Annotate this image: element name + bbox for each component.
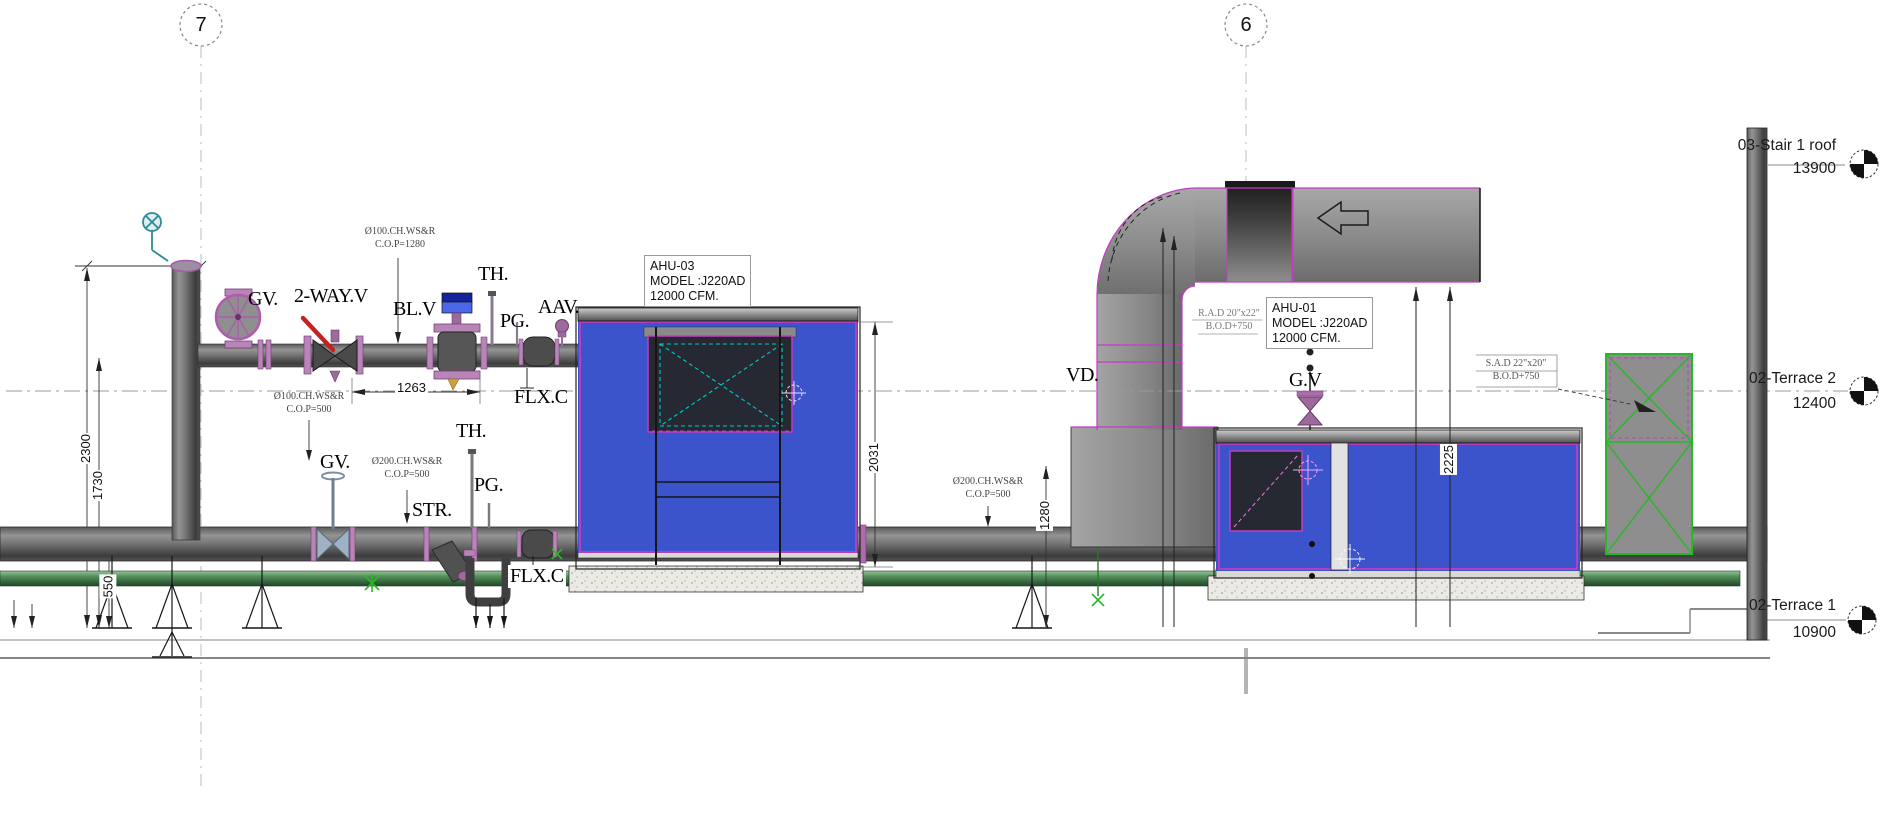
- louver-boxes: [1606, 354, 1692, 554]
- ahu03-tag-box: AHU-03 MODEL :J220AD 12000 CFM.: [644, 255, 751, 307]
- pipe-tag-chw-main: Ø200.CH.WS&R C.O.P=500: [933, 475, 1043, 501]
- ahu01-tag-box: AHU-01 MODEL :J220AD 12000 CFM.: [1266, 297, 1373, 349]
- ahu03-flow: 12000 CFM.: [650, 289, 745, 304]
- label-flex-conn-top: FLX.C: [514, 386, 568, 409]
- label-gate-valve-top: GV.: [248, 288, 278, 311]
- label-pressure-gauge-low: PG.: [474, 474, 503, 497]
- level-terrace1-elev: 10900: [1700, 624, 1836, 642]
- ahu01-unit: [1208, 428, 1584, 600]
- label-volume-damper: VD.: [1066, 364, 1098, 387]
- dim-1263: 1263: [395, 380, 428, 395]
- cad-drawing-view: 7 6 03-Stair 1 roof 13900 02-Terrace 2 1…: [0, 0, 1894, 829]
- duct-tag-rad: R.A.D 20"x22" B.O.D+750: [1179, 307, 1279, 333]
- dim-550: 550: [99, 575, 116, 599]
- balancing-valve: [427, 293, 487, 390]
- label-strainer: STR.: [412, 499, 452, 522]
- label-gate-valve-low: GV.: [320, 451, 350, 474]
- pipe-tag-chw-low: Ø200.CH.WS&R C.O.P=500: [352, 455, 462, 481]
- grid-bubbles: [180, 4, 1267, 46]
- label-pressure-gauge-top: PG.: [500, 310, 529, 333]
- label-air-vent: AAV.: [538, 296, 579, 319]
- label-thermometer-low: TH.: [456, 420, 486, 443]
- dim-2031: 2031: [865, 442, 882, 473]
- ahu03-model: MODEL :J220AD: [650, 274, 745, 289]
- dim-2225: 2225: [1440, 444, 1457, 475]
- grid-bubble-6: 6: [1234, 14, 1258, 37]
- level-terrace2-name: 02-Terrace 2: [1700, 370, 1836, 388]
- label-flex-conn-low: FLX.C: [508, 565, 566, 588]
- label-two-way-valve: 2-WAY.V: [294, 285, 368, 308]
- level-stair-roof-name: 03-Stair 1 roof: [1700, 137, 1836, 155]
- dim-2300: 2300: [77, 433, 94, 464]
- pipe-tag-chw-mid: Ø100.CH.WS&R C.O.P=500: [254, 390, 364, 416]
- ahu01-flow: 12000 CFM.: [1272, 331, 1367, 346]
- dim-1730: 1730: [89, 470, 106, 501]
- ahu01-model: MODEL :J220AD: [1272, 316, 1367, 331]
- pipe-tag-chw-top: Ø100.CH.WS&R C.O.P=1280: [345, 225, 455, 251]
- level-terrace2-elev: 12400: [1700, 395, 1836, 413]
- level-terrace1-name: 02-Terrace 1: [1700, 597, 1836, 615]
- grid-bubble-7: 7: [189, 14, 213, 37]
- ahu01-tag: AHU-01: [1272, 301, 1367, 316]
- label-thermometer-top: TH.: [478, 263, 508, 286]
- elevation-symbols: [1848, 150, 1878, 634]
- label-balancing-valve: BL.V: [393, 298, 436, 321]
- label-gate-valve-right: G.V: [1289, 369, 1321, 392]
- ahu03-unit: [569, 307, 863, 592]
- duct-tag-sad: S.A.D 22"x20" B.O.D+750: [1466, 357, 1566, 383]
- ahu03-tag: AHU-03: [650, 259, 745, 274]
- dim-1280: 1280: [1036, 500, 1053, 531]
- level-stair-roof-elev: 13900: [1700, 160, 1836, 178]
